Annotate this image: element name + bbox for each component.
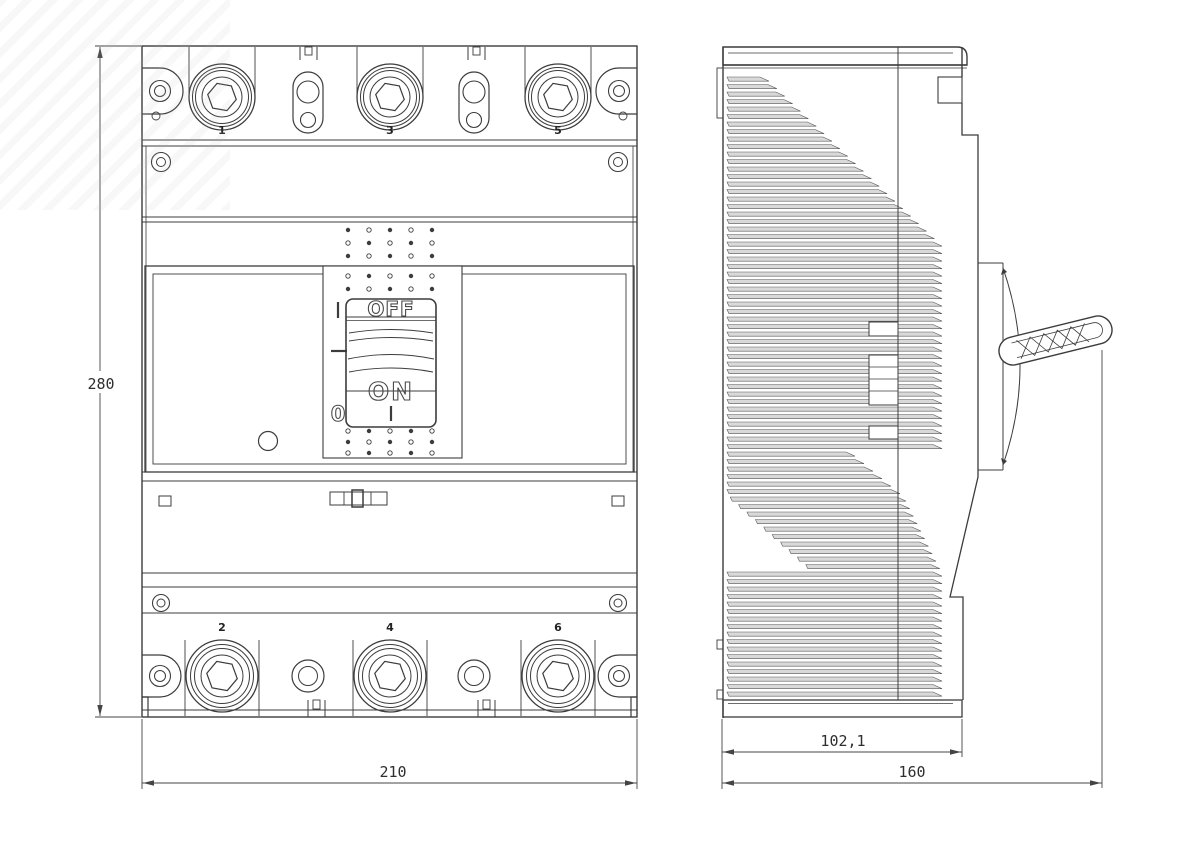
dim-width-label: 210 <box>379 763 406 781</box>
dimension-annotations: 280 210 102,1 160 <box>83 46 1102 789</box>
front-top-terminals <box>189 47 591 133</box>
terminal-label-6: 6 <box>554 621 562 634</box>
breaker-front-view: 1 3 5 2 4 6 OFF ON 0 <box>142 46 637 717</box>
front-bottom-terminals <box>185 640 595 716</box>
dim-depth-body-label: 102,1 <box>820 732 865 750</box>
drawing-canvas: 1 3 5 2 4 6 OFF ON 0 280 210 102,1 160 <box>0 0 1200 848</box>
dim-depth-total-label: 160 <box>898 763 925 781</box>
position-off-symbol: 0 <box>331 402 346 426</box>
terminal-label-4: 4 <box>386 621 394 634</box>
technical-drawing: 1 3 5 2 4 6 OFF ON 0 280 210 102,1 160 <box>0 0 1200 848</box>
dim-height-label: 280 <box>87 375 114 393</box>
breaker-side-view <box>717 47 1112 718</box>
terminal-label-2: 2 <box>218 621 226 634</box>
terminal-label-1: 1 <box>218 124 226 137</box>
operating-handle <box>999 316 1112 365</box>
toggle-off-label: OFF <box>367 297 414 321</box>
side-cooling-fins <box>727 77 942 696</box>
toggle-on-label: ON <box>368 377 414 406</box>
terminal-label-3: 3 <box>386 124 394 137</box>
terminal-label-5: 5 <box>554 124 562 137</box>
